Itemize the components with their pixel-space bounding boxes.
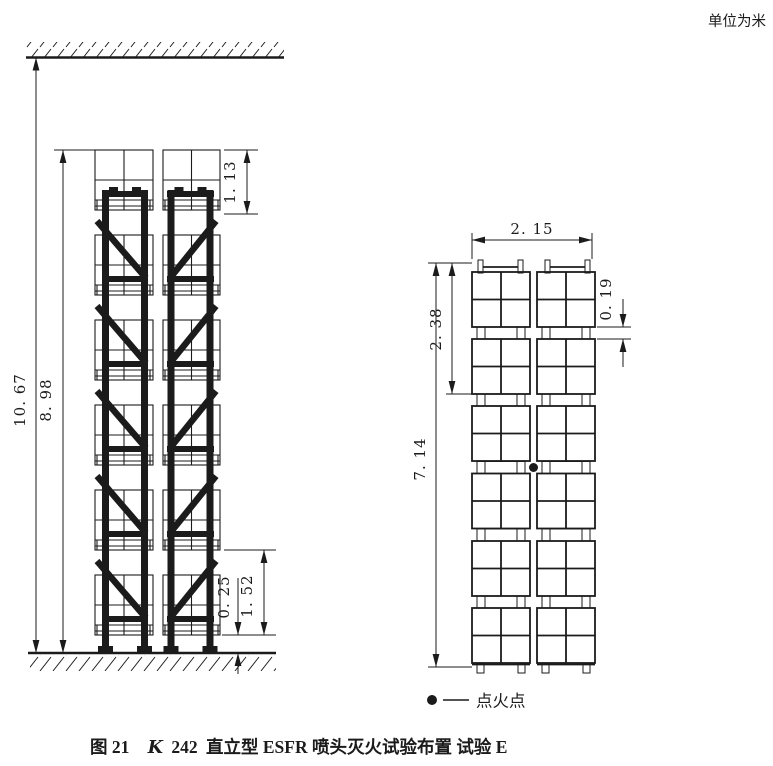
ignition-point-dot xyxy=(529,463,538,472)
technical-drawing: 10. 67 8. 98 1. 13 1. 52 0. 25 xyxy=(0,0,773,766)
caption-k-factor: K xyxy=(147,738,164,758)
dim-ceiling-to-floor-label: 10. 67 xyxy=(11,373,29,427)
dim-overall-width: 2. 15 xyxy=(472,220,592,259)
bottom-pallet-feet xyxy=(472,664,595,673)
side-view-dimensions: 2. 15 2. 38 7. 14 0. 19 xyxy=(411,220,631,667)
dim-stack-height-label: 7. 14 xyxy=(411,437,429,480)
figure-canvas: 10. 67 8. 98 1. 13 1. 52 0. 25 xyxy=(0,0,773,766)
legend: 点火点 xyxy=(427,692,526,711)
dim-floor-clearance-label: 0. 25 xyxy=(215,575,233,618)
dim-pallet-height-label: 0. 19 xyxy=(597,277,615,320)
dim-pallet-height: 0. 19 xyxy=(597,277,631,367)
legend-ignition-dot xyxy=(427,695,437,705)
caption-title: 直立型 ESFR 喷头灭火试验布置 试验 E xyxy=(206,737,507,757)
legend-ignition-label: 点火点 xyxy=(476,692,526,711)
unit-note: 单位为米 xyxy=(708,13,766,30)
dim-overall-width-label: 2. 15 xyxy=(510,220,553,238)
dim-load-top-to-floor-label: 8. 98 xyxy=(37,378,55,421)
caption-figure-number: 图 21 xyxy=(90,737,129,757)
caption-k-number: 242 xyxy=(171,737,197,757)
dim-bottom-load-height-label: 1. 52 xyxy=(238,574,256,617)
dim-top-load-height: 1. 13 xyxy=(221,150,258,214)
dim-load-top-to-floor: 8. 98 xyxy=(37,150,95,653)
dim-two-tier-height: 2. 38 xyxy=(427,263,522,394)
ceiling-hatch xyxy=(26,42,284,58)
front-view-rack xyxy=(95,150,220,653)
dim-top-load-height-label: 1. 13 xyxy=(221,160,239,203)
top-pallet-posts xyxy=(478,260,590,273)
figure-caption: 图 21 K 242 直立型 ESFR 喷头灭火试验布置 试验 E xyxy=(90,737,507,758)
floor-hatch xyxy=(28,653,276,671)
side-view-stack xyxy=(472,260,595,673)
dim-ceiling-to-floor: 10. 67 xyxy=(11,58,36,654)
